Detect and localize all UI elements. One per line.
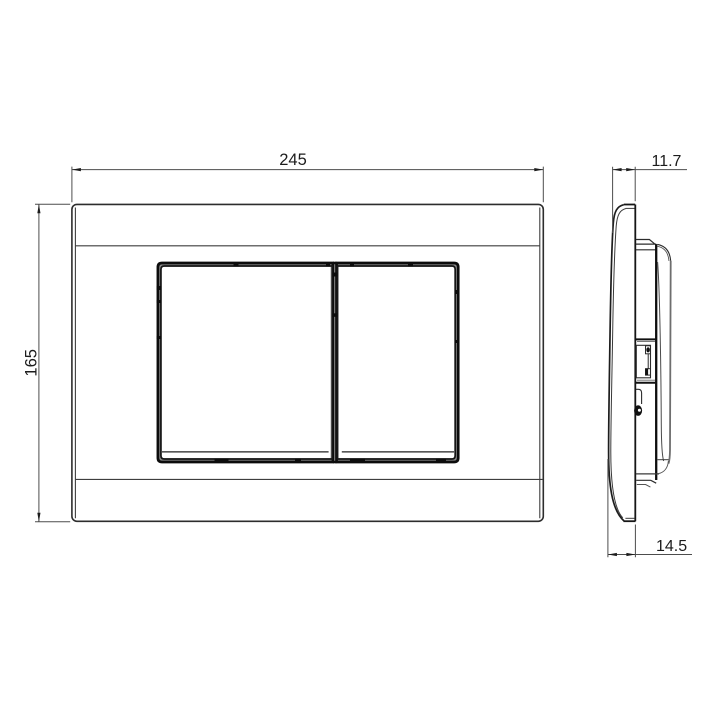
svg-text:245: 245 xyxy=(279,151,307,169)
svg-text:11.7: 11.7 xyxy=(652,153,682,170)
svg-text:165: 165 xyxy=(23,349,41,377)
svg-text:14.5: 14.5 xyxy=(656,538,687,555)
